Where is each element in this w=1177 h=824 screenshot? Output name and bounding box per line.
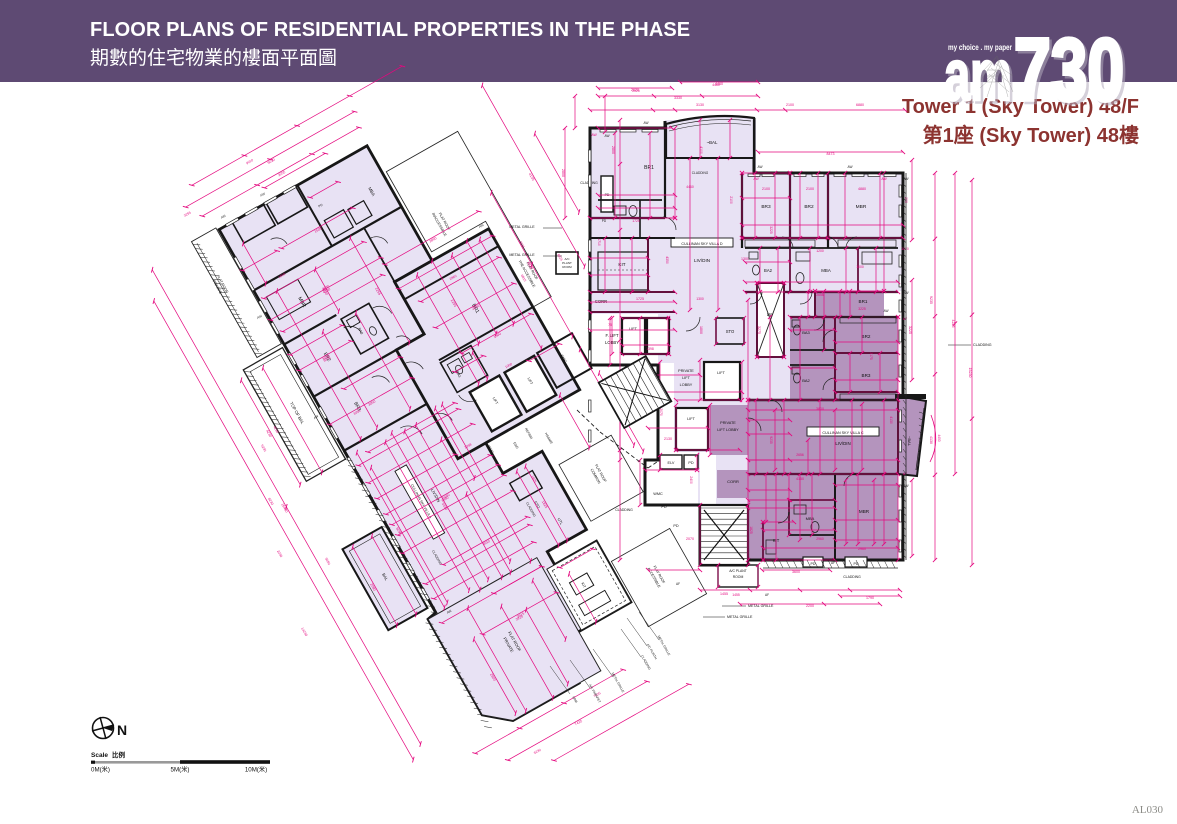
svg-text:6880: 6880 — [856, 103, 864, 107]
svg-text:ROOM: ROOM — [562, 265, 572, 269]
svg-text:ELV: ELV — [668, 461, 675, 465]
svg-text:4230: 4230 — [265, 429, 272, 438]
svg-text:BR1: BR1 — [644, 165, 654, 171]
svg-text:4135: 4135 — [528, 172, 535, 181]
svg-text:AF: AF — [676, 582, 680, 586]
svg-text:1300: 1300 — [696, 297, 704, 301]
svg-text:4460: 4460 — [712, 83, 720, 87]
svg-text:AW: AW — [259, 192, 265, 198]
svg-text:PRIVATE: PRIVATE — [678, 369, 694, 373]
svg-text:2656: 2656 — [816, 293, 824, 297]
svg-text:3225: 3225 — [908, 326, 912, 334]
svg-text:AW: AW — [591, 133, 597, 137]
svg-text:SRM: SRM — [571, 695, 578, 703]
svg-text:5M(米): 5M(米) — [171, 766, 190, 774]
svg-text:HS&MR: HS&MR — [544, 432, 554, 445]
svg-text:4400: 4400 — [937, 434, 941, 441]
svg-text:PD: PD — [602, 219, 607, 223]
svg-text:0M(米): 0M(米) — [91, 766, 110, 774]
svg-text:2070: 2070 — [686, 537, 694, 541]
svg-text:4100: 4100 — [699, 146, 703, 154]
svg-text:1455: 1455 — [720, 592, 728, 596]
svg-text:BR2: BR2 — [862, 334, 871, 339]
svg-text:BR3: BR3 — [862, 373, 871, 378]
svg-text:AF: AF — [831, 561, 835, 565]
svg-text:3330: 3330 — [674, 96, 682, 100]
svg-text:3225: 3225 — [858, 307, 866, 311]
svg-text:AW: AW — [478, 223, 484, 229]
svg-text:2100: 2100 — [729, 196, 733, 204]
svg-text:METAL GRILLE: METAL GRILLE — [509, 225, 535, 229]
svg-text:LIFT: LIFT — [687, 417, 695, 421]
svg-text:3600: 3600 — [792, 570, 800, 574]
svg-text:1790: 1790 — [866, 596, 874, 600]
svg-text:LIFT: LIFT — [629, 327, 637, 331]
svg-text:BA3: BA3 — [802, 330, 810, 335]
svg-text:1300: 1300 — [741, 257, 749, 261]
svg-text:PD: PD — [661, 505, 667, 509]
svg-text:5230: 5230 — [260, 444, 267, 453]
svg-text:4350: 4350 — [665, 256, 669, 264]
svg-text:1825: 1825 — [749, 526, 753, 534]
svg-text:CLADDING: CLADDING — [692, 171, 709, 175]
svg-text:LIFT: LIFT — [682, 376, 690, 380]
svg-text:1725: 1725 — [632, 219, 640, 223]
svg-text:4880: 4880 — [858, 187, 866, 191]
svg-text:LIFT: LIFT — [717, 371, 725, 375]
svg-text:BA2: BA2 — [802, 378, 810, 383]
svg-text:BR1: BR1 — [859, 299, 868, 304]
svg-text:CORR: CORR — [595, 299, 607, 304]
svg-text:CLADDING: CLADDING — [843, 575, 861, 579]
svg-text:3255: 3255 — [183, 211, 192, 218]
svg-text:5230: 5230 — [533, 748, 542, 755]
svg-text:2400: 2400 — [689, 476, 693, 484]
svg-text:WMC: WMC — [653, 492, 663, 496]
svg-text:2960: 2960 — [816, 537, 824, 541]
svg-text:A/C PLINTH: A/C PLINTH — [646, 643, 658, 661]
svg-text:MBR: MBR — [859, 509, 870, 514]
svg-text:1455: 1455 — [732, 593, 740, 597]
svg-text:2020: 2020 — [632, 89, 640, 93]
svg-text:LIV/DIN: LIV/DIN — [694, 258, 710, 263]
svg-text:STO: STO — [726, 329, 735, 334]
svg-text:LIV/DIN: LIV/DIN — [835, 441, 850, 446]
svg-text:Scale: Scale — [91, 752, 108, 759]
svg-text:8473: 8473 — [827, 152, 835, 156]
svg-text:LOBBY: LOBBY — [680, 383, 693, 387]
svg-text:1800: 1800 — [699, 326, 703, 334]
svg-text:2960: 2960 — [858, 547, 866, 551]
svg-text:~BAL: ~BAL — [707, 140, 718, 145]
svg-text:~BAL: ~BAL — [907, 436, 912, 447]
svg-text:CORR: CORR — [727, 479, 739, 484]
svg-text:KIT: KIT — [618, 262, 625, 267]
svg-text:2100: 2100 — [786, 103, 794, 107]
svg-text:METAL GRILLE: METAL GRILLE — [748, 604, 774, 608]
svg-text:AW: AW — [643, 121, 648, 125]
svg-text:AW: AW — [220, 214, 226, 220]
svg-text:MBR: MBR — [856, 204, 867, 210]
svg-text:CULLINAN SKY VILLA D: CULLINAN SKY VILLA D — [681, 242, 722, 246]
svg-text:4130: 4130 — [889, 416, 893, 424]
svg-text:A/C PLANT: A/C PLANT — [729, 569, 747, 573]
svg-text:PRIVATE: PRIVATE — [720, 421, 736, 425]
svg-text:1200: 1200 — [816, 249, 824, 253]
svg-text:10M(米): 10M(米) — [245, 766, 267, 774]
svg-text:AW: AW — [757, 165, 762, 169]
svg-text:METAL GRILLE: METAL GRILLE — [509, 253, 535, 257]
svg-text:CLADDING: CLADDING — [640, 654, 652, 671]
svg-text:3130: 3130 — [696, 103, 704, 107]
svg-text:2175: 2175 — [869, 352, 873, 360]
svg-text:14230: 14230 — [300, 627, 308, 637]
svg-text:2656: 2656 — [796, 453, 804, 457]
svg-text:METAL GRILLE: METAL GRILLE — [657, 635, 672, 657]
svg-text:AW: AW — [604, 134, 609, 138]
svg-text:3050: 3050 — [324, 557, 331, 566]
svg-text:1725: 1725 — [636, 297, 644, 301]
svg-text:METAL GRILLE: METAL GRILLE — [611, 672, 626, 694]
svg-text:AF: AF — [765, 593, 769, 597]
svg-text:9010: 9010 — [245, 158, 254, 165]
svg-text:8230: 8230 — [267, 497, 274, 506]
svg-text:MBA: MBA — [821, 268, 831, 273]
svg-text:CLADDING: CLADDING — [973, 343, 992, 347]
svg-text:BA2: BA2 — [764, 268, 773, 273]
svg-text:2100: 2100 — [806, 187, 814, 191]
svg-text:3275: 3275 — [757, 326, 761, 334]
svg-text:REF/MR: REF/MR — [524, 427, 534, 440]
svg-text:2070: 2070 — [659, 408, 663, 416]
svg-text:PD: PD — [673, 524, 679, 528]
svg-text:PD: PD — [688, 461, 694, 465]
svg-text:BR2: BR2 — [804, 204, 814, 210]
svg-text:4130: 4130 — [929, 436, 933, 444]
svg-text:AW: AW — [881, 177, 887, 181]
svg-text:CULLINAN SKY VILLA C: CULLINAN SKY VILLA C — [822, 431, 863, 435]
svg-text:AW: AW — [883, 309, 888, 313]
svg-text:7425: 7425 — [574, 719, 583, 726]
svg-text:比例: 比例 — [112, 750, 126, 759]
svg-text:LIFT LOBBY: LIFT LOBBY — [717, 428, 739, 432]
svg-text:2130: 2130 — [664, 437, 672, 441]
svg-text:730: 730 — [1014, 20, 1124, 119]
svg-text:N: N — [117, 722, 127, 738]
svg-text:AW: AW — [847, 165, 852, 169]
svg-text:3225: 3225 — [769, 226, 773, 234]
svg-text:2230: 2230 — [276, 550, 283, 559]
svg-text:AW: AW — [753, 177, 759, 181]
svg-text:METAL GRILLE: METAL GRILLE — [727, 615, 753, 619]
svg-text:MBA: MBA — [806, 516, 815, 521]
svg-text:ROOM: ROOM — [733, 575, 744, 579]
svg-text:9235: 9235 — [929, 296, 933, 304]
svg-text:BR3: BR3 — [761, 204, 771, 210]
svg-text:2200: 2200 — [806, 604, 814, 608]
svg-text:9235: 9235 — [769, 436, 773, 444]
svg-text:4225: 4225 — [951, 320, 955, 328]
svg-text:15230: 15230 — [968, 368, 972, 378]
svg-text:1710: 1710 — [597, 238, 601, 246]
svg-text:2800: 2800 — [611, 146, 615, 154]
svg-text:1000: 1000 — [856, 265, 864, 269]
svg-text:CLADDING: CLADDING — [615, 508, 633, 512]
svg-text:E&D: E&D — [512, 441, 519, 450]
svg-text:2800: 2800 — [561, 169, 565, 177]
svg-text:2100: 2100 — [762, 187, 770, 191]
svg-text:1398: 1398 — [646, 347, 654, 351]
